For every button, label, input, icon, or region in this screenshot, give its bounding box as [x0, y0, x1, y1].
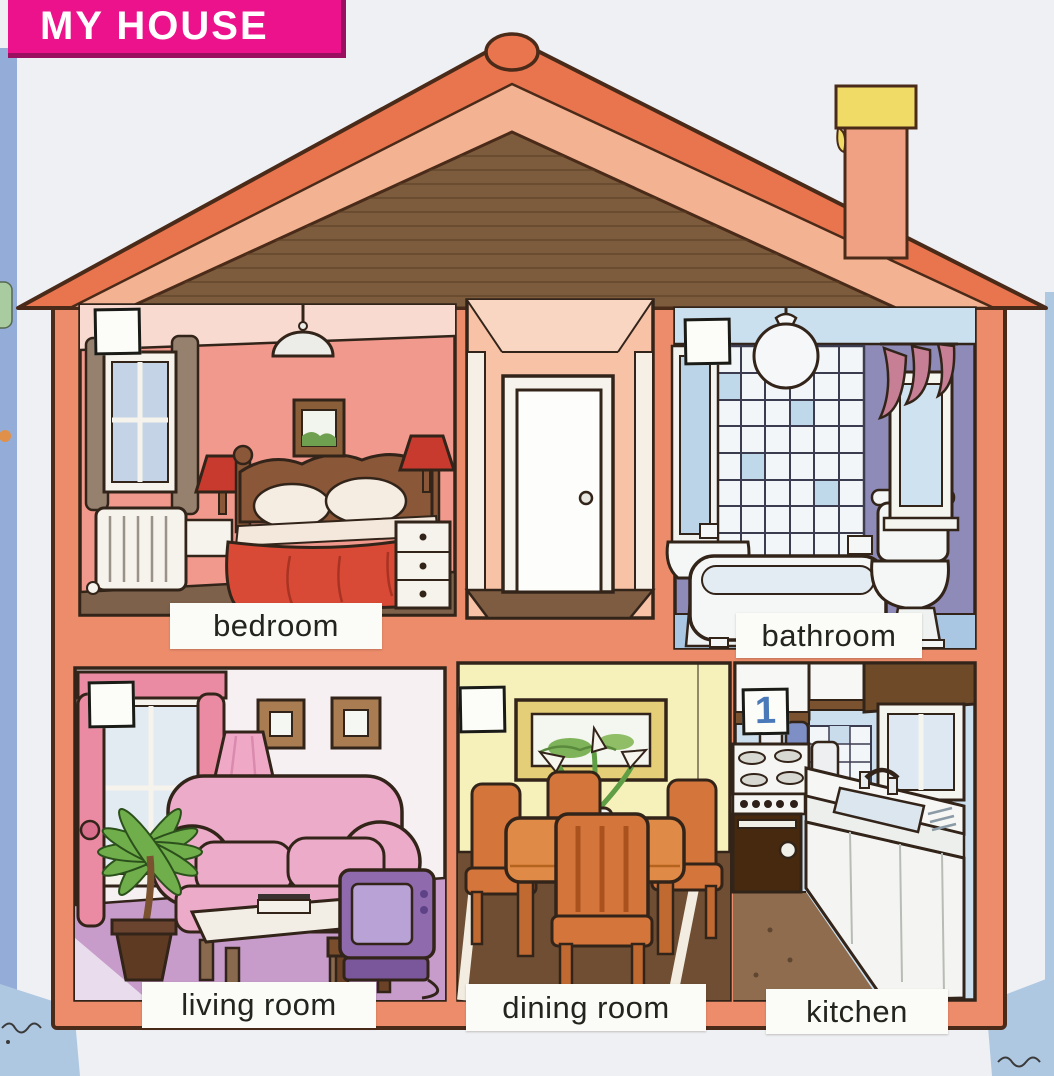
- worksheet-page: MY HOUSE 1 bedroom bathroom living room …: [0, 0, 1054, 1076]
- ridge-cap: [486, 34, 538, 70]
- bathroom-window: [880, 344, 958, 530]
- answer-box-living-room[interactable]: [88, 681, 136, 729]
- house-illustration: [0, 0, 1054, 1076]
- label-bedroom: bedroom: [170, 603, 382, 649]
- page-title: MY HOUSE: [40, 4, 269, 49]
- bedside-table-left: [186, 520, 232, 556]
- hallway-door: [503, 376, 613, 592]
- tv-set: [328, 870, 438, 998]
- nightstand-right: [396, 522, 450, 608]
- dining-picture-frame: [516, 700, 666, 780]
- chimney: [836, 86, 916, 258]
- answer-box-dining-room[interactable]: [459, 686, 507, 734]
- bathroom-mirror: [672, 346, 718, 544]
- kitchen-window: [864, 663, 975, 800]
- curtain-left: [78, 694, 104, 926]
- hallway-illustration: [467, 300, 653, 618]
- bedroom-window: [86, 336, 198, 514]
- bedroom-picture-frame: [294, 400, 344, 456]
- stove: [733, 744, 809, 892]
- radiator: [87, 508, 186, 594]
- answer-box-kitchen[interactable]: 1: [742, 688, 790, 736]
- answer-box-bathroom[interactable]: [684, 318, 732, 366]
- label-dining-room: dining room: [466, 984, 706, 1031]
- label-bathroom: bathroom: [736, 613, 922, 658]
- label-living-room: living room: [142, 982, 376, 1028]
- title-banner: MY HOUSE: [8, 0, 346, 58]
- door-knob: [580, 492, 592, 504]
- answer-box-bedroom[interactable]: [94, 308, 142, 356]
- answer-value-kitchen: 1: [755, 690, 777, 733]
- label-kitchen: kitchen: [766, 989, 948, 1034]
